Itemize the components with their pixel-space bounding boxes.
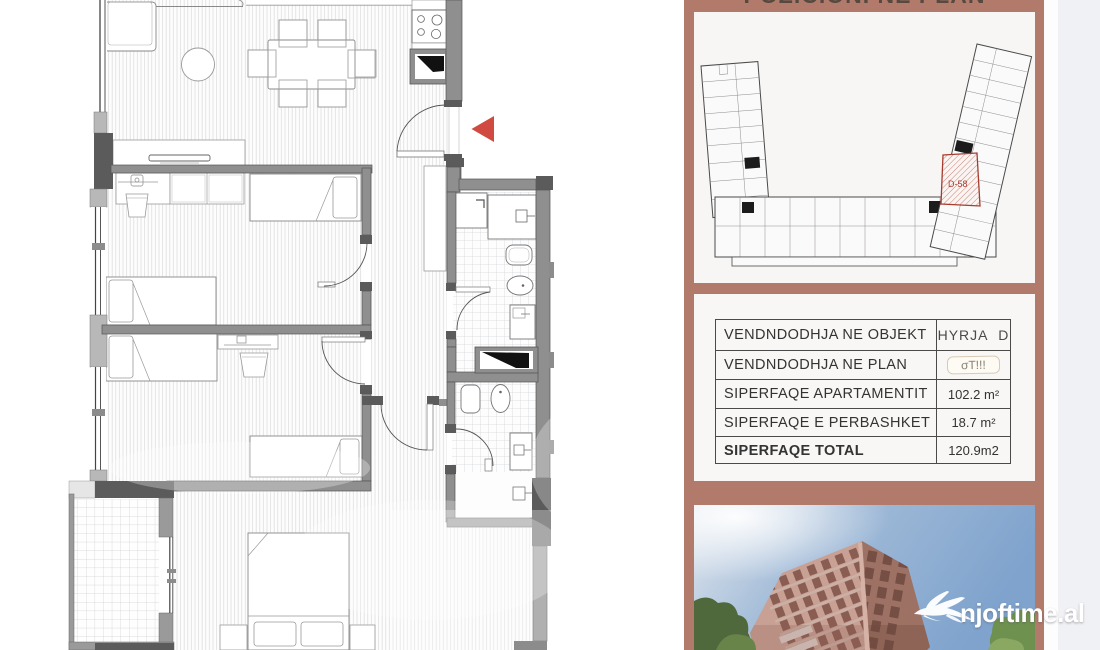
svg-text:D-58: D-58	[948, 179, 968, 189]
